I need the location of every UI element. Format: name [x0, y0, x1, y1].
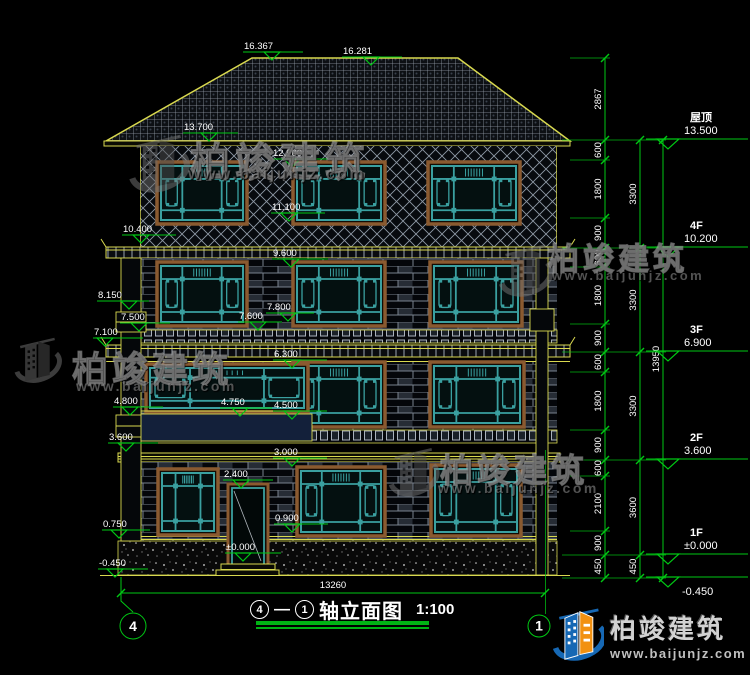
- title-text: 轴立面图: [319, 595, 403, 624]
- svg-text:6.300: 6.300: [274, 349, 298, 360]
- window: [157, 262, 247, 326]
- floor-level-屋顶: 屋顶13.500: [562, 111, 748, 149]
- svg-text:2F: 2F: [690, 432, 703, 444]
- brand-logo-icon: [550, 603, 604, 667]
- svg-text:4: 4: [129, 618, 137, 634]
- svg-text:0.750: 0.750: [103, 519, 127, 530]
- cad-canvas: 16.36716.28113.70012.90011.10010.4009.60…: [0, 0, 750, 675]
- svg-text:900: 900: [593, 330, 604, 346]
- dimension-chain: 2867600180090060018009006001800900600210…: [570, 54, 610, 582]
- svg-text:13260: 13260: [320, 580, 346, 591]
- floor-level--0.450: -0.450: [562, 577, 748, 598]
- svg-text:4.750: 4.750: [221, 397, 245, 408]
- dimension-chain: 3300330033003600450: [628, 136, 644, 582]
- window: [158, 469, 218, 535]
- svg-text:11.100: 11.100: [272, 202, 300, 213]
- svg-text:900: 900: [593, 437, 604, 453]
- svg-text:0.900: 0.900: [275, 513, 299, 524]
- dimension-chain: 13950: [651, 136, 667, 582]
- brand-url: www.baijunjz.com: [610, 646, 746, 661]
- svg-text:2100: 2100: [593, 493, 604, 514]
- svg-text:7.600: 7.600: [239, 311, 263, 322]
- title-axis-separator: —: [274, 601, 290, 619]
- svg-text:1800: 1800: [593, 178, 604, 199]
- window: [430, 362, 524, 427]
- svg-text:1800: 1800: [593, 390, 604, 411]
- svg-text:4.800: 4.800: [114, 396, 138, 407]
- watermark-url: www.baijunjz.com: [438, 480, 599, 496]
- svg-text:1: 1: [535, 618, 543, 634]
- window: [293, 262, 385, 326]
- balcony: [141, 411, 312, 441]
- svg-text:16.281: 16.281: [343, 46, 372, 57]
- svg-text:2.400: 2.400: [224, 469, 248, 480]
- door-step: [216, 570, 279, 576]
- svg-text:7.100: 7.100: [94, 327, 118, 338]
- svg-text:4.500: 4.500: [274, 400, 298, 411]
- title-axis-left-bubble: 4: [250, 600, 269, 619]
- svg-text:1F: 1F: [690, 527, 703, 539]
- floor-level-1F: 1F±0.000: [562, 527, 748, 564]
- plinth: [118, 541, 557, 575]
- svg-text:10.400: 10.400: [123, 224, 152, 235]
- watermark-url: www.baijunjz.com: [552, 268, 704, 283]
- svg-text:±0.000: ±0.000: [226, 542, 255, 553]
- window: [297, 467, 385, 536]
- svg-text:6.900: 6.900: [684, 337, 712, 349]
- door-step: [221, 564, 275, 570]
- svg-text:4F: 4F: [690, 220, 703, 232]
- svg-text:±0.000: ±0.000: [684, 540, 718, 552]
- svg-text:3.000: 3.000: [274, 447, 298, 458]
- window: [428, 162, 520, 224]
- svg-text:屋顶: 屋顶: [690, 111, 712, 124]
- drawing-title: 4 — 1 轴立面图 1:100: [250, 595, 454, 624]
- svg-text:450: 450: [593, 559, 604, 575]
- floor-level-2F: 2F3.600: [562, 432, 748, 469]
- brand-logo: 柏竣建筑 www.baijunjz.com: [550, 603, 746, 667]
- svg-text:2867: 2867: [593, 88, 604, 109]
- svg-text:450: 450: [628, 559, 639, 575]
- svg-text:-0.450: -0.450: [99, 558, 126, 569]
- brand-name: 柏竣建筑: [610, 609, 746, 646]
- svg-text:7.500: 7.500: [121, 312, 145, 323]
- svg-text:7.800: 7.800: [267, 302, 291, 313]
- svg-text:1800: 1800: [593, 285, 604, 306]
- elevation-drawing: 16.36716.28113.70012.90011.10010.4009.60…: [0, 0, 750, 675]
- svg-text:9.600: 9.600: [273, 248, 297, 259]
- svg-text:3F: 3F: [690, 324, 703, 336]
- svg-text:3600: 3600: [628, 497, 639, 518]
- title-scale: 1:100: [416, 601, 454, 618]
- svg-text:600: 600: [593, 142, 604, 158]
- svg-text:16.367: 16.367: [244, 41, 273, 52]
- svg-text:3300: 3300: [628, 289, 639, 310]
- watermark-url: www.baijunjz.com: [188, 166, 366, 184]
- svg-text:900: 900: [593, 535, 604, 551]
- title-underline-thin: [256, 627, 429, 629]
- svg-text:3.600: 3.600: [684, 445, 712, 457]
- svg-text:-0.450: -0.450: [682, 586, 713, 598]
- title-underline: [256, 621, 429, 625]
- svg-text:600: 600: [593, 460, 604, 476]
- watermark-url: www.baijunjz.com: [76, 378, 237, 394]
- elevation-marker-16.367: 16.367: [243, 41, 303, 60]
- svg-text:3300: 3300: [628, 183, 639, 204]
- svg-text:13.500: 13.500: [684, 125, 718, 137]
- svg-text:3.600: 3.600: [109, 432, 133, 443]
- svg-text:10.200: 10.200: [684, 233, 718, 245]
- svg-text:600: 600: [593, 354, 604, 370]
- svg-text:13950: 13950: [651, 346, 662, 372]
- svg-text:8.150: 8.150: [98, 290, 122, 301]
- title-axis-right-bubble: 1: [295, 600, 314, 619]
- svg-text:3300: 3300: [628, 395, 639, 416]
